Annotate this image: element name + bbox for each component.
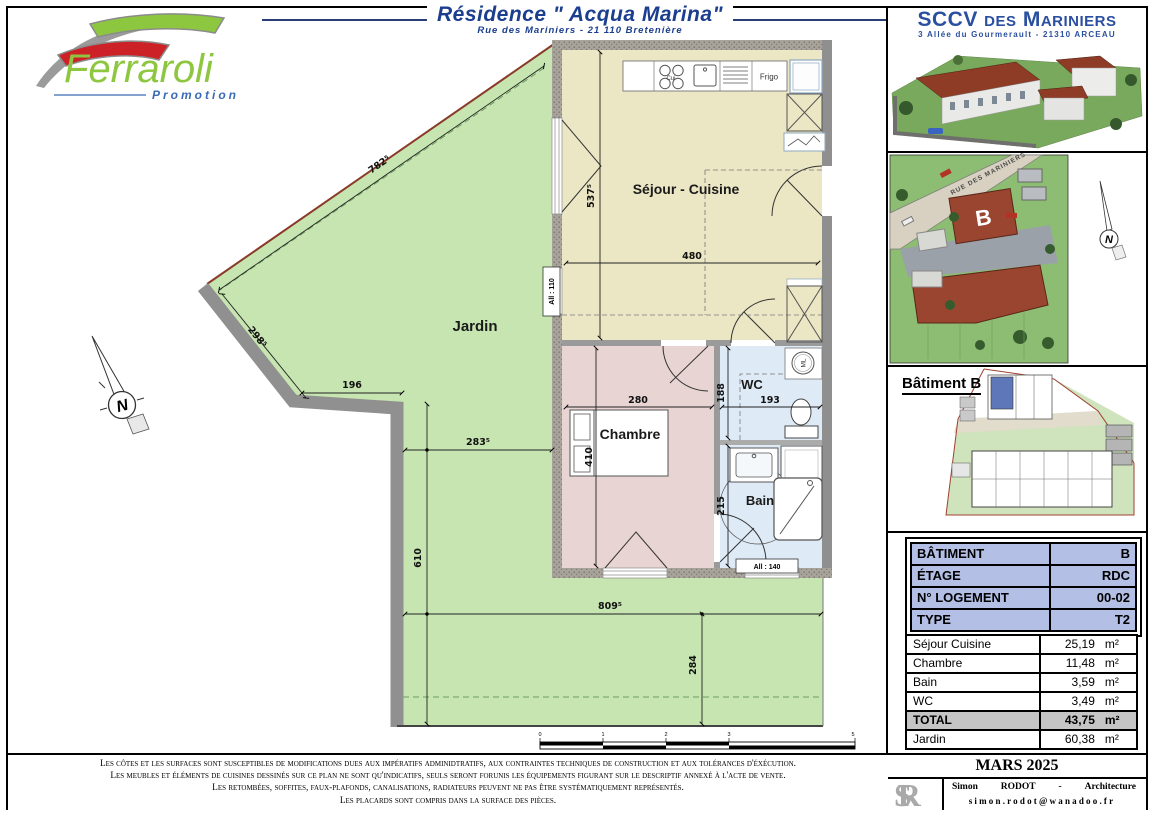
floor-plan-drawing: Cui Frigo xyxy=(8,36,888,753)
sejour-window xyxy=(552,118,562,214)
washer-column-icon xyxy=(781,446,822,482)
site-plan-image: RUE DES MARINIERS B xyxy=(888,153,1146,365)
svg-text:1: 1 xyxy=(601,732,604,738)
table-row: Bain 3,59 m² xyxy=(907,674,1136,693)
chambre-label: Chambre xyxy=(600,426,661,442)
svg-text:410: 410 xyxy=(584,447,595,467)
surface-table: Séjour Cuisine 25,19 m² Chambre 11,48 m²… xyxy=(905,634,1138,750)
svg-text:610: 610 xyxy=(413,548,424,568)
table-row: Jardin 60,38 m² xyxy=(907,731,1136,748)
svg-text:193: 193 xyxy=(760,395,780,406)
company-name: SCCV des Mariniers xyxy=(888,10,1146,30)
svg-text:537⁵: 537⁵ xyxy=(586,184,597,208)
water-heater-icon xyxy=(784,133,825,151)
chambre-window xyxy=(603,568,667,578)
svg-text:283⁵: 283⁵ xyxy=(466,437,490,448)
render-3d-panel xyxy=(888,38,1146,153)
bain-label: Bain xyxy=(746,493,774,508)
wc-label: WC xyxy=(741,377,763,392)
allege-110-label: All : 110 xyxy=(549,278,556,305)
table-row: BÂTIMENT B xyxy=(912,544,1135,566)
jardin-label: Jardin xyxy=(452,318,497,335)
disclaimer-line: Les retombées, soffites, faux-plafonds, … xyxy=(8,782,888,794)
disclaimer-line: Les placards sont compris dans la surfac… xyxy=(8,795,888,807)
render-3d-image xyxy=(888,38,1146,151)
table-row: Chambre 11,48 m² xyxy=(907,655,1136,674)
architect-name: Simon RODOT - Architecture xyxy=(952,782,1136,792)
svg-text:809⁵: 809⁵ xyxy=(598,601,622,612)
architect-logo: SR xyxy=(894,781,938,809)
disclaimer-line: Les meubles et éléments de cuisines dess… xyxy=(8,770,888,782)
title-block-footer: MARS 2025 SR Simon RODOT - Architecture … xyxy=(888,753,1146,810)
fridge-label: Frigo xyxy=(760,73,779,82)
tables-panel: BÂTIMENT B ÉTAGE RDC N° LOGEMENT 00-02 T… xyxy=(888,533,1146,753)
company-header: SCCV des Mariniers 3 Allée du Gourmeraul… xyxy=(888,8,1146,39)
kitchen-counter: Cui Frigo xyxy=(623,61,787,91)
svg-text:0: 0 xyxy=(538,732,541,738)
title-block: Résidence " Acqua Marina" Rue des Marini… xyxy=(300,3,860,36)
shower-icon xyxy=(774,478,822,540)
stove-label: Cui xyxy=(666,76,675,82)
svg-text:215: 215 xyxy=(716,496,727,516)
page-subtitle: Rue des Mariniers - 21 110 Bretenière xyxy=(300,25,860,36)
highlighted-unit xyxy=(991,377,1013,409)
unit-info-table: BÂTIMENT B ÉTAGE RDC N° LOGEMENT 00-02 T… xyxy=(905,537,1142,637)
table-row: Séjour Cuisine 25,19 m² xyxy=(907,636,1136,655)
allege-140-label: All : 140 xyxy=(754,564,781,571)
svg-text:2: 2 xyxy=(664,732,667,738)
table-row-total: TOTAL 43,75 m² xyxy=(907,712,1136,731)
washbasin-icon xyxy=(730,448,778,482)
sejour-label: Séjour - Cuisine xyxy=(633,181,740,197)
batiment-b-label: Bâtiment B xyxy=(902,375,981,395)
svg-text:196: 196 xyxy=(342,380,362,391)
table-row: N° LOGEMENT 00-02 xyxy=(912,588,1135,610)
entry-door-gap xyxy=(822,166,832,216)
lower-building xyxy=(952,451,1112,507)
svg-text:N: N xyxy=(1105,234,1114,246)
batiment-b-panel: Bâtiment B xyxy=(888,367,1146,533)
table-row: ÉTAGE RDC xyxy=(912,566,1135,588)
svg-text:480: 480 xyxy=(682,251,702,262)
site-plan-panel: RUE DES MARINIERS B xyxy=(888,153,1146,367)
table-row: WC 3,49 m² xyxy=(907,693,1136,712)
car-icon xyxy=(1006,213,1017,218)
svg-text:280: 280 xyxy=(628,395,648,406)
svg-text:284: 284 xyxy=(688,655,699,675)
north-arrow-icon: N xyxy=(92,336,149,434)
architect-email: simon.rodot@wanadoo.fr xyxy=(948,796,1136,806)
svg-text:188: 188 xyxy=(716,383,727,403)
scale-bar: 0 1 2 3 5 xyxy=(538,732,855,749)
disclaimer-band: Les côtes et les surfaces sont susceptib… xyxy=(8,753,888,810)
table-row: TYPE T2 xyxy=(912,610,1135,630)
car-icon xyxy=(928,128,943,134)
page-title: Résidence " Acqua Marina" xyxy=(427,3,733,27)
disclaimer-line: Les côtes et les surfaces sont susceptib… xyxy=(8,758,888,770)
svg-text:5: 5 xyxy=(851,732,854,738)
svg-text:3: 3 xyxy=(727,732,730,738)
washer-label: ML xyxy=(801,358,808,367)
logo-green-swoosh xyxy=(90,14,224,37)
floor-plan-sheet: Ferraroli Promotion Résidence " Acqua Ma… xyxy=(0,0,1153,816)
date-label: MARS 2025 xyxy=(888,757,1146,775)
